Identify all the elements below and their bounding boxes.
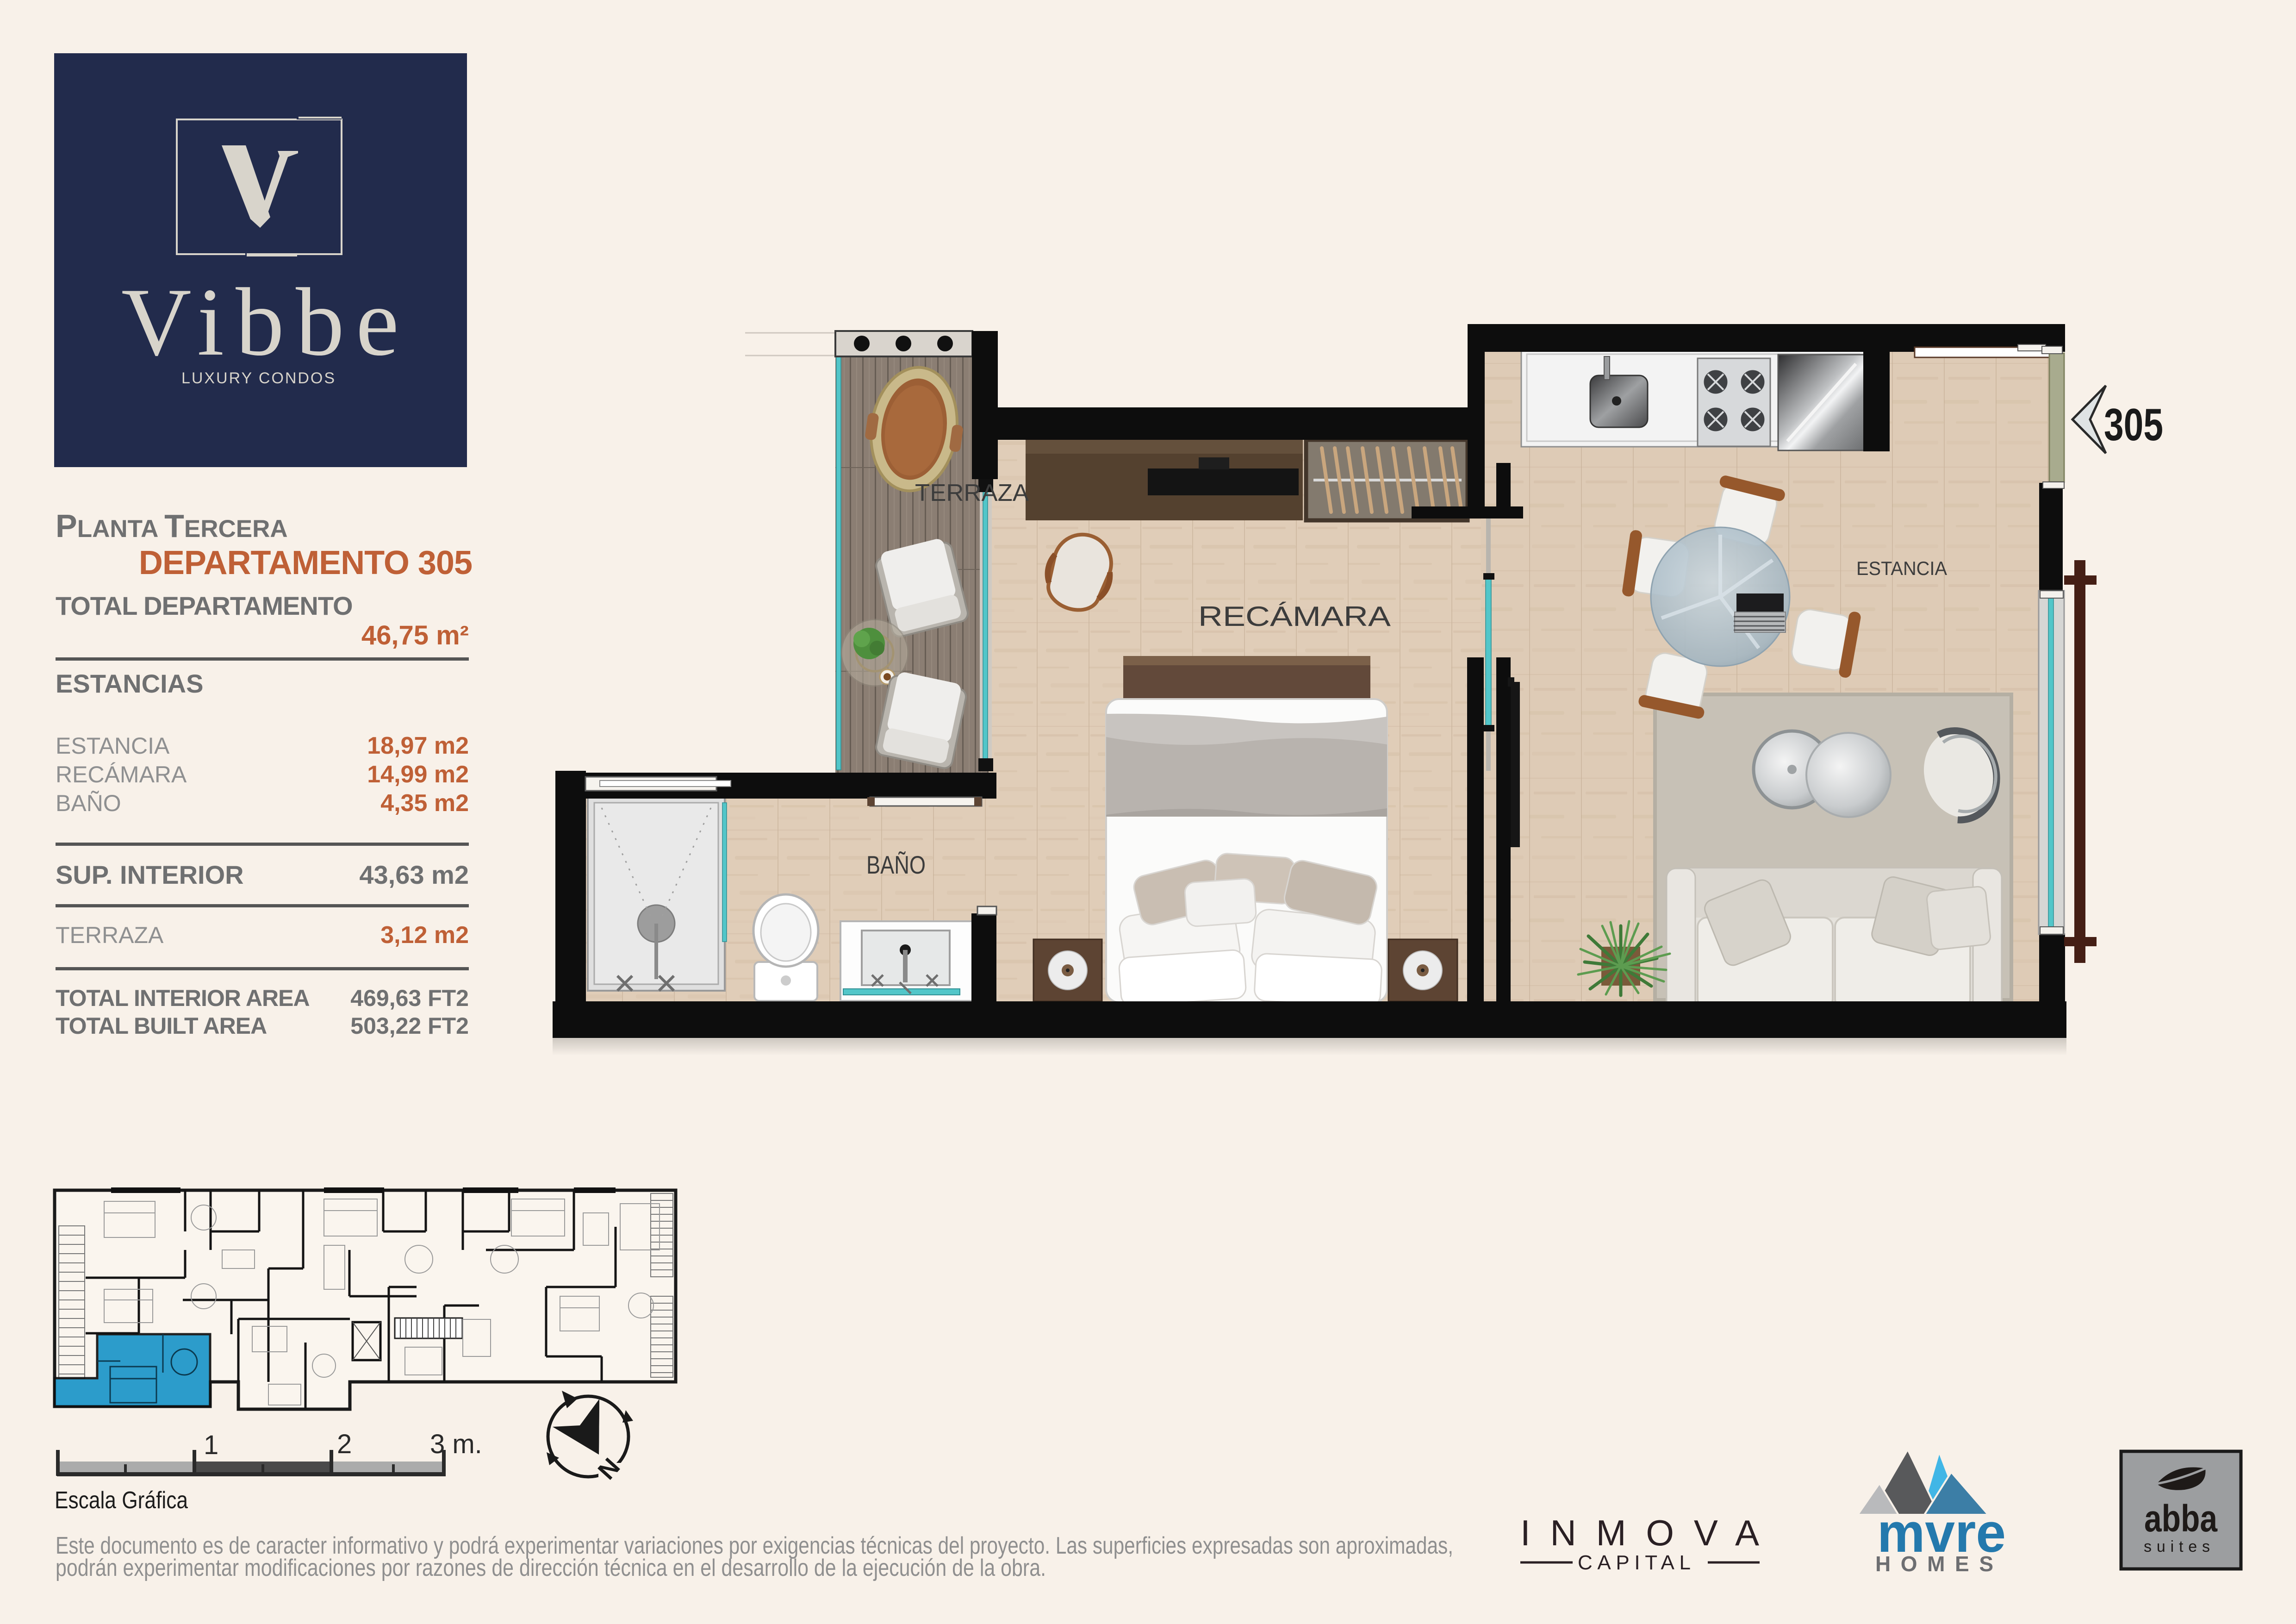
svg-text:TERRAZA: TERRAZA bbox=[915, 480, 1029, 506]
svg-text:1: 1 bbox=[204, 1430, 218, 1460]
svg-text:14,99 m2: 14,99 m2 bbox=[367, 761, 469, 788]
svg-text:4,35 m2: 4,35 m2 bbox=[380, 790, 469, 817]
svg-text:BAÑO: BAÑO bbox=[866, 850, 926, 879]
svg-text:ESTANCIA: ESTANCIA bbox=[56, 733, 170, 759]
svg-text:INMOVA: INMOVA bbox=[1520, 1512, 1780, 1553]
svg-text:TERRAZA: TERRAZA bbox=[56, 922, 164, 948]
svg-text:3 m.: 3 m. bbox=[430, 1429, 482, 1459]
svg-text:CAPITAL: CAPITAL bbox=[1578, 1551, 1703, 1574]
svg-text:Escala Gráfica: Escala Gráfica bbox=[55, 1487, 188, 1514]
svg-text:RECÁMARA: RECÁMARA bbox=[1198, 601, 1391, 632]
svg-text:469,63 FT2: 469,63 FT2 bbox=[350, 985, 469, 1011]
svg-text:46,75 m²: 46,75 m² bbox=[361, 620, 469, 650]
svg-text:RECÁMARA: RECÁMARA bbox=[56, 762, 187, 787]
svg-text:HOMES: HOMES bbox=[1875, 1552, 2006, 1576]
svg-text:abba: abba bbox=[2144, 1498, 2218, 1540]
svg-text:DEPARTAMENTO 305: DEPARTAMENTO 305 bbox=[139, 544, 472, 581]
svg-text:18,97 m2: 18,97 m2 bbox=[367, 732, 469, 759]
svg-text:ESTANCIA: ESTANCIA bbox=[1856, 557, 1947, 579]
svg-text:3,12 m2: 3,12 m2 bbox=[380, 922, 469, 949]
svg-text:43,63 m2: 43,63 m2 bbox=[359, 860, 469, 889]
svg-text:TOTAL DEPARTAMENTO: TOTAL DEPARTAMENTO bbox=[56, 591, 353, 620]
svg-text:podrán experimentar modificaci: podrán experimentar modificaciones por r… bbox=[56, 1555, 1046, 1581]
svg-text:Vibbe: Vibbe bbox=[121, 269, 399, 376]
svg-text:TOTAL BUILT AREA: TOTAL BUILT AREA bbox=[56, 1013, 267, 1039]
svg-text:2: 2 bbox=[337, 1429, 352, 1459]
svg-text:SUP. INTERIOR: SUP. INTERIOR bbox=[56, 860, 244, 889]
svg-text:503,22 FT2: 503,22 FT2 bbox=[350, 1013, 469, 1039]
svg-text:suites: suites bbox=[2144, 1538, 2218, 1555]
svg-text:BAÑO: BAÑO bbox=[56, 790, 121, 816]
svg-text:305: 305 bbox=[2104, 399, 2163, 450]
svg-text:LUXURY CONDOS: LUXURY CONDOS bbox=[181, 369, 339, 387]
svg-text:ESTANCIAS: ESTANCIAS bbox=[56, 669, 203, 698]
svg-text:TOTAL INTERIOR AREA: TOTAL INTERIOR AREA bbox=[56, 985, 310, 1011]
